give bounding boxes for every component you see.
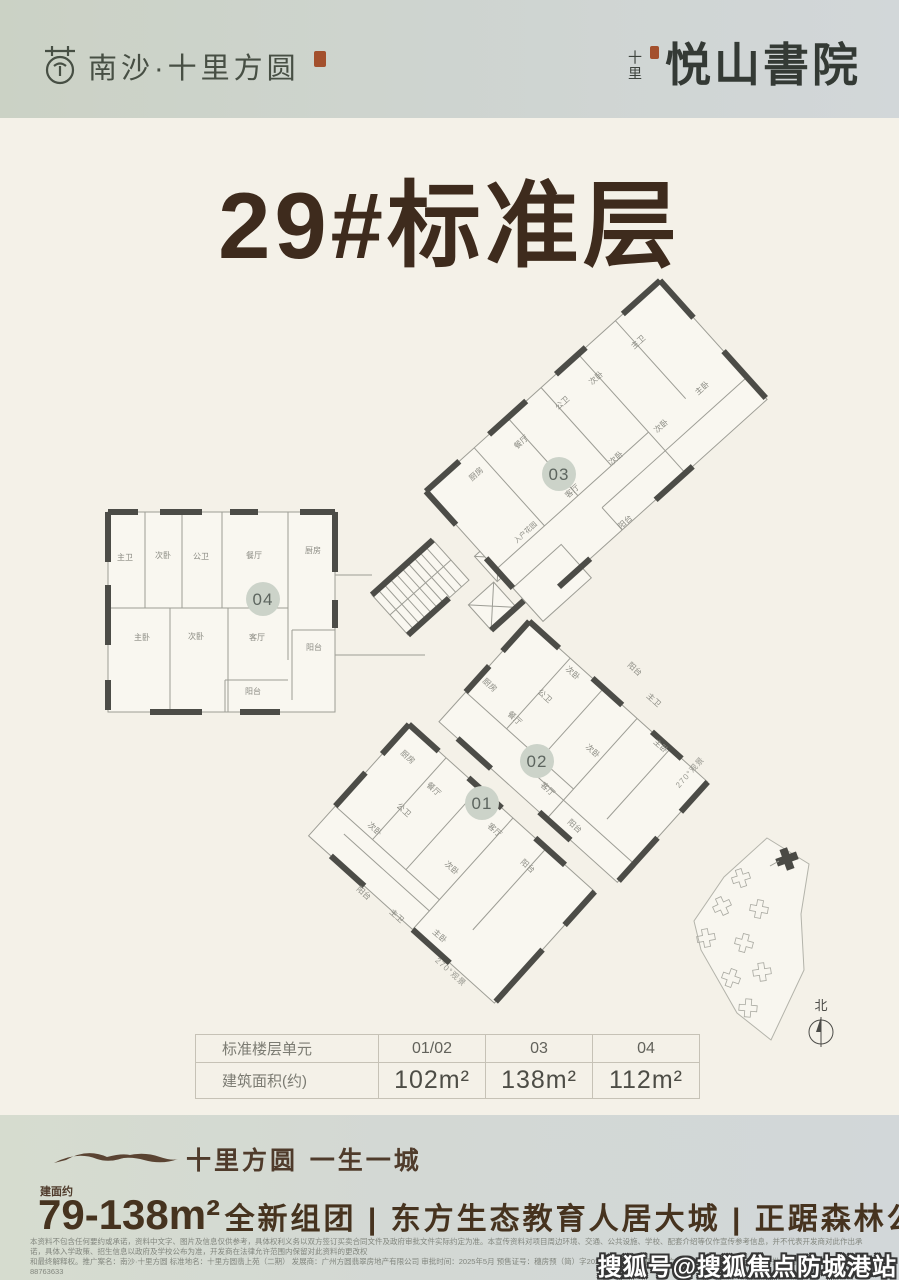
area-table: 标准楼层单元 01/02 03 04 建筑面积(约) 102m² 138m² 1… [195,1034,700,1099]
poster-page: 南沙·十里方圆 十里 悦山書院 29#标准层 [0,0,899,1280]
table-unit-04: 04 [593,1035,699,1063]
unit-02-badge-label: 02 [527,752,548,771]
room-label: 餐厅 [246,551,262,560]
room-label: 主卧 [134,632,150,642]
footer-tagline: 全新组团 | 东方生态教育人居大城 | 正踞森林公园前排 [225,1203,899,1236]
mountain-logo-icon [52,1143,180,1171]
table-row2-label: 建筑面积(约) [196,1063,379,1098]
table-area-0102: 102m² [379,1063,486,1098]
table-area-04: 112m² [593,1063,699,1098]
room-label: 次卧 [188,631,204,641]
table-area-03: 138m² [486,1063,593,1098]
footer-band: 十里方圆 一生一城 建面约 79-138m² 全新组团 | 东方生态教育人居大城… [0,1115,899,1280]
room-label: 阳台 [306,642,322,652]
room-label: 阳台 [245,686,261,696]
footer-slogan: 十里方圆 一生一城 [186,1141,422,1177]
room-label: 公卫 [193,552,209,561]
unit-01-badge-label: 01 [472,794,493,813]
north-compass: 北 [809,998,833,1047]
room-label: 厨房 [305,545,321,555]
watermark: 搜狐号@搜狐焦点防城港站 [598,1247,897,1280]
area-range: 79-138m² [38,1191,220,1238]
table-unit-03: 03 [486,1035,593,1063]
site-plan-map [694,838,809,1040]
room-label: 阳台 [626,660,645,678]
north-label: 北 [814,998,827,1013]
unit-04-badge-label: 04 [253,590,274,609]
room-label: 客厅 [249,632,265,642]
compass-needle-icon [816,1017,821,1032]
footer-headline: 79-138m² 全新组团 | 东方生态教育人居大城 | 正踞森林公园前排 [38,1191,899,1239]
room-label: 主卫 [645,691,664,709]
unit-03-plan [426,281,777,622]
table-unit-0102: 01/02 [379,1035,486,1063]
room-label: 次卧 [155,550,171,560]
unit-03-badge-label: 03 [549,465,570,484]
room-label: 主卫 [117,552,133,562]
table-row1-label: 标准楼层单元 [196,1035,379,1063]
